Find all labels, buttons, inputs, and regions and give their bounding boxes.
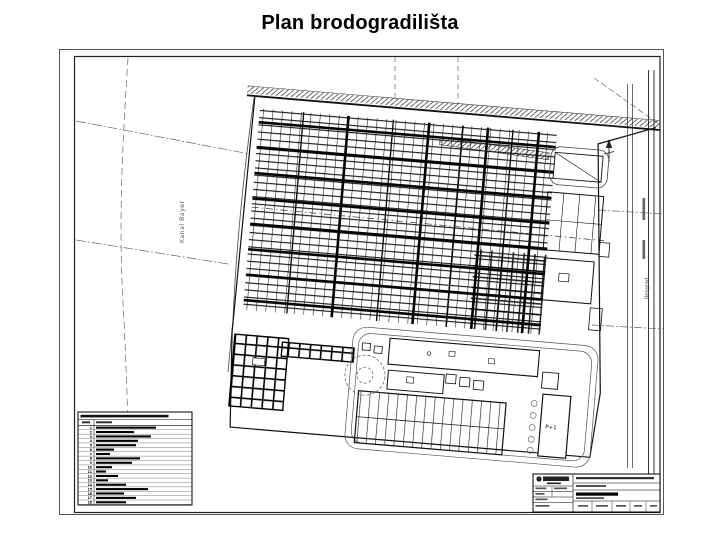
legend-row-label — [96, 453, 110, 455]
road-right — [628, 70, 655, 474]
legend-row-label — [96, 457, 140, 459]
road-label: Beograd — [645, 278, 651, 299]
legend-row-label — [96, 427, 156, 429]
legend-row-label — [96, 497, 136, 499]
legend-row-label — [96, 492, 124, 494]
berth-grid — [243, 108, 613, 339]
legend-row-label — [96, 435, 151, 437]
legend-row-label — [96, 462, 132, 464]
office-building: P+1 — [527, 371, 573, 458]
legend-row-label — [96, 466, 112, 468]
legend-row-label — [96, 449, 114, 451]
legend-row-label — [96, 501, 126, 503]
legend-row-label — [96, 475, 118, 477]
legend-row-number: 17 — [88, 496, 92, 500]
legend-table: 123456789101112131415161718 — [78, 412, 192, 505]
canal-label: Kanal Bayer — [179, 200, 186, 243]
legend-row-label — [96, 440, 138, 442]
legend-row-label — [96, 471, 106, 473]
legend-row-label — [96, 444, 136, 446]
site-plan: P+1 — [218, 86, 660, 472]
office-building-label: P+1 — [545, 424, 557, 431]
outfitting-grid — [229, 334, 355, 416]
legend-row-label — [96, 479, 108, 481]
drawing-name-text — [576, 493, 618, 496]
legend-row-label — [96, 488, 148, 490]
legend-row-number: 18 — [88, 501, 93, 505]
shipyard-plan-drawing: Kanal Bayer Beograd — [0, 0, 720, 540]
presentation-slide: Plan brodogradilišta — [0, 0, 720, 540]
legend-row-label — [96, 431, 134, 433]
project-name-text — [576, 477, 654, 479]
parking-lot — [354, 391, 506, 455]
title-block — [533, 474, 660, 512]
legend-title — [81, 415, 169, 418]
legend-row-label — [96, 484, 126, 486]
